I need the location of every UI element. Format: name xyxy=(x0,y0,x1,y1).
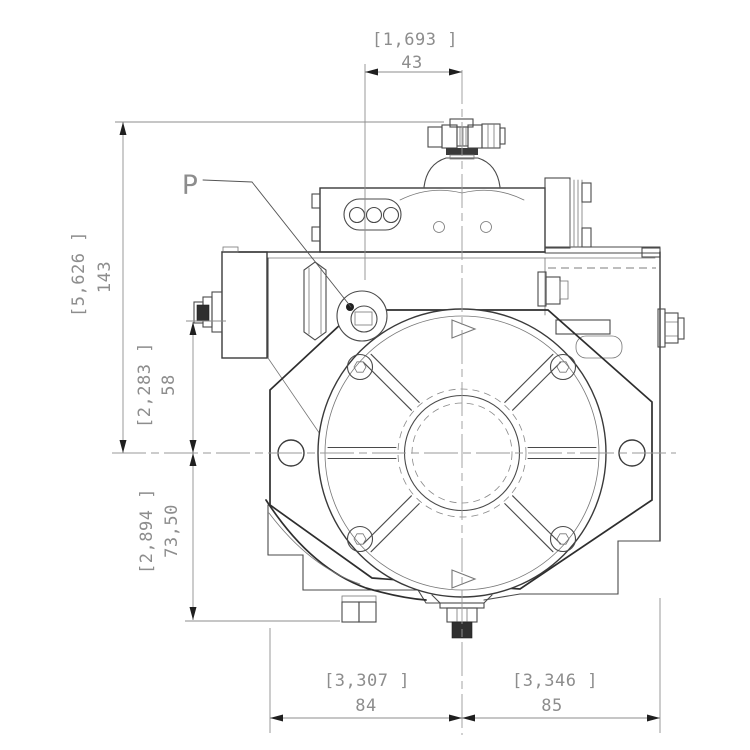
compensator-valve-block xyxy=(312,178,591,252)
left-hex-plug xyxy=(194,292,222,332)
right-plug-washer xyxy=(658,309,665,347)
side-boss-bar xyxy=(556,320,610,334)
dim-top-inch-label: [1,693 ] xyxy=(372,30,458,50)
front-face-hex-plug xyxy=(304,262,326,340)
front-hex-outline xyxy=(304,262,326,340)
dim-bottom-left-width: [3,307 ] 84 xyxy=(270,628,462,733)
dim-port-mm-label: 58 xyxy=(159,374,179,395)
plug-seal xyxy=(197,305,209,321)
boss-hole xyxy=(367,208,382,223)
dim-bottom-right-width: [3,346 ] 85 xyxy=(462,598,660,733)
end-cap-tab xyxy=(582,183,591,202)
dim-height-mm-label: 143 xyxy=(95,261,115,293)
right-hex-plug xyxy=(658,309,684,347)
screw-top-cap xyxy=(450,119,473,127)
engineering-drawing-page: [1,693 ] 43 [5,626 ] 143 [2,283 ] 58 [2,… xyxy=(0,0,750,750)
dim-bl-inch-label: [3,307 ] xyxy=(324,671,410,691)
dim-lower-inch-label: [2,894 ] xyxy=(137,488,157,574)
left-block-tab xyxy=(223,247,238,252)
valve-body xyxy=(320,188,545,252)
boss-hole xyxy=(384,208,399,223)
dim-port-height: [2,283 ] 58 xyxy=(135,321,226,453)
end-cap-tab xyxy=(582,228,591,247)
valve-face-hole xyxy=(434,222,445,233)
foot-plate xyxy=(342,596,376,602)
rear-side-fitting xyxy=(538,272,568,306)
bottom-foot-fitting xyxy=(342,596,376,622)
right-plug-hex xyxy=(665,313,678,343)
right-plug-cap xyxy=(678,318,684,339)
pump-front-view-drawing: [1,693 ] 43 [5,626 ] 143 [2,283 ] 58 [2,… xyxy=(0,0,750,750)
dim-bl-mm-label: 84 xyxy=(355,696,376,716)
screw-wing-left-outer xyxy=(428,127,442,147)
screw-collar xyxy=(468,125,482,148)
foot-square xyxy=(359,602,376,622)
rear-fitting-hex xyxy=(546,277,560,304)
valve-left-tab xyxy=(312,227,320,241)
foot-square xyxy=(342,602,359,622)
port-p-leader-line xyxy=(203,180,351,307)
valve-end-cap xyxy=(545,178,570,248)
screw-wing-left xyxy=(442,125,457,148)
valve-left-tab xyxy=(312,194,320,208)
dim-lower-mm-label: 73,50 xyxy=(162,504,182,558)
valve-face-hole xyxy=(481,222,492,233)
adjustment-screw-assembly xyxy=(424,119,505,187)
boss-hole xyxy=(350,208,365,223)
dim-br-mm-label: 85 xyxy=(541,696,562,716)
leader-dot xyxy=(346,303,354,311)
rear-fitting-base xyxy=(560,281,568,299)
dim-port-inch-label: [2,283 ] xyxy=(135,342,155,428)
nut-end xyxy=(500,128,505,144)
dim-height-inch-label: [5,626 ] xyxy=(69,231,89,317)
body-diagonal-edge xyxy=(268,358,322,437)
port-p-label: P xyxy=(182,170,198,201)
lock-nut xyxy=(482,124,500,148)
left-port-block xyxy=(222,252,267,358)
dim-top-mm-label: 43 xyxy=(401,53,422,73)
dim-br-inch-label: [3,346 ] xyxy=(512,671,598,691)
dim-lower-height: [2,894 ] 73,50 xyxy=(137,453,340,621)
gauge-boss-obround xyxy=(344,199,401,230)
plug-washer xyxy=(212,292,222,332)
